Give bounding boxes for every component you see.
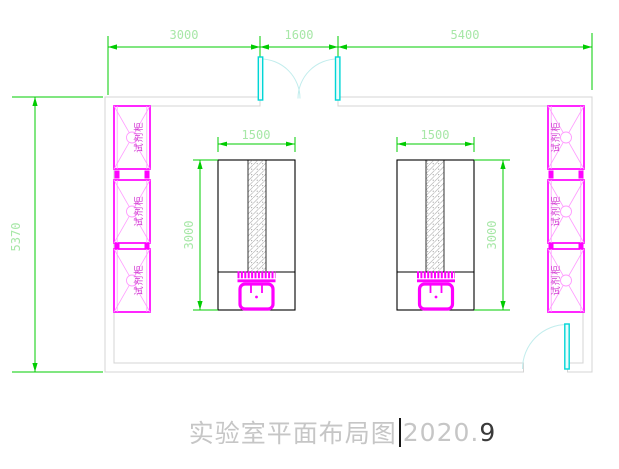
top-dimension	[108, 33, 592, 95]
door-leaf-left	[258, 57, 262, 100]
room-walls	[105, 96, 592, 373]
cabinet-label: 试剂柜	[551, 260, 563, 300]
drawing-title-year: 2020.	[403, 418, 480, 447]
floorplan-svg	[0, 0, 619, 469]
drawing-title-text: 实验室平面布局图	[189, 414, 397, 450]
door-leaf-right	[336, 57, 340, 100]
drawing-title: 实验室平面布局图 2020. 9	[65, 413, 619, 451]
left-dimension	[12, 97, 103, 372]
cabinet-label: 试剂柜	[134, 191, 146, 231]
door-leaf	[565, 324, 569, 369]
cabinet-label: 试剂柜	[134, 117, 146, 157]
drawing-title-suffix: 9	[479, 418, 495, 447]
hatch-strip	[248, 160, 266, 272]
hatch-strip	[426, 160, 444, 272]
cabinet-label: 试剂柜	[551, 117, 563, 157]
sink-symbol-left	[238, 275, 276, 309]
floorplan-canvas: 3000 1600 5400 5370 1500 1500 3000 3000 …	[0, 0, 619, 469]
cabinet-label: 试剂柜	[134, 260, 146, 300]
double-door-top	[258, 57, 340, 100]
cabinet-label: 试剂柜	[551, 191, 563, 231]
sink-symbol-right	[417, 275, 455, 309]
text-cursor	[399, 418, 401, 447]
